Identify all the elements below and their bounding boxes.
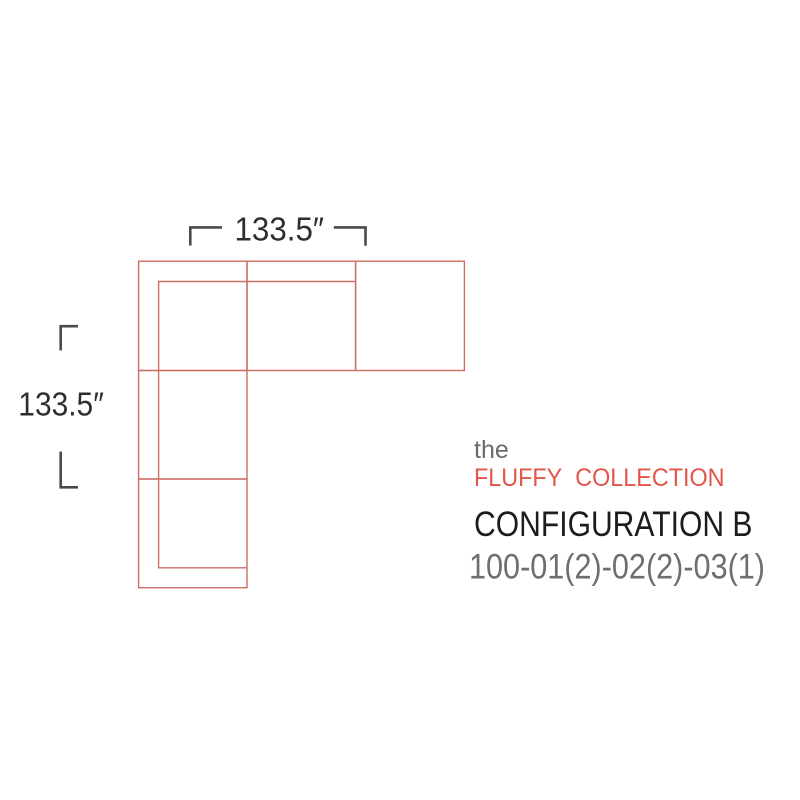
svg-text:the: the (474, 436, 509, 464)
svg-text:FLUFFY COLLECTION: FLUFFY COLLECTION (474, 464, 725, 492)
svg-text:133.5″: 133.5″ (235, 211, 325, 248)
svg-text:133.5″: 133.5″ (18, 386, 104, 423)
svg-text:100-01(2)-02(2)-03(1): 100-01(2)-02(2)-03(1) (469, 548, 765, 587)
svg-text:CONFIGURATION B: CONFIGURATION B (474, 505, 753, 544)
